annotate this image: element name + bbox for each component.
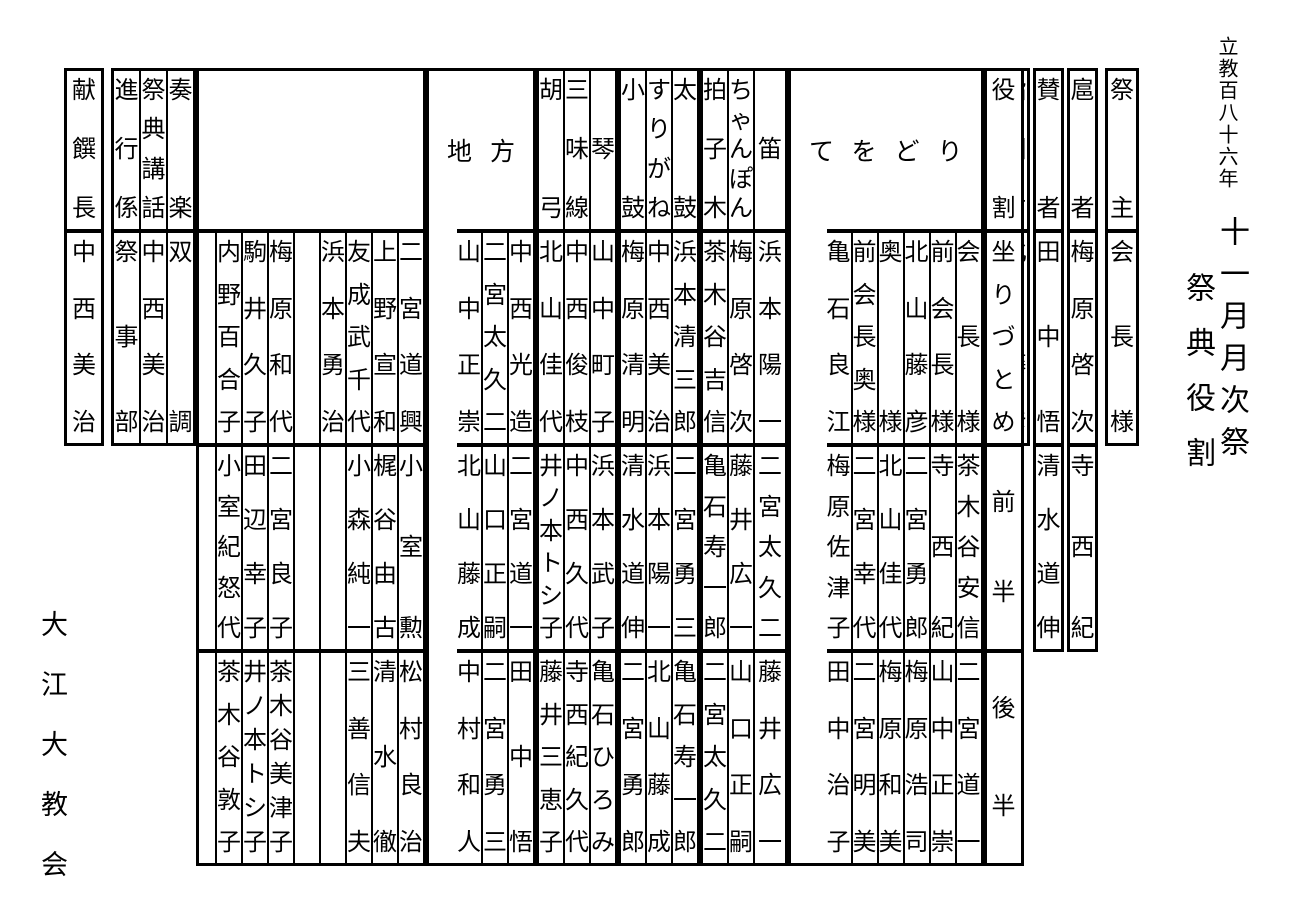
name-cell: 小室紀怒代	[217, 443, 241, 649]
jikata-group: 地方 中西光造 二宮道一 田中悟 二宮太久二 山口正嗣 二宮勇三 山中正崇 北山…	[426, 68, 536, 866]
name-cell: 二宮幸代	[853, 443, 877, 649]
taiko-columns: 太鼓 浜本清三郎 二宮勇三 亀石寿一郎 すりがね 中西美治 浜本陽一 北山藤成 …	[621, 71, 697, 863]
header-shamisen: 三味線	[565, 71, 589, 229]
name-cell: 前会長様	[931, 229, 955, 443]
kosha-box: 扈者 梅原啓次 寺西紀	[1067, 68, 1098, 652]
name-cell: 松村良治	[399, 649, 423, 863]
hyoshigi-column: 拍子木 茶木谷吉信 亀石寿一郎 二宮太久二	[703, 71, 729, 863]
teodori-column-0: 会長様 茶木谷安信 二宮道一	[957, 229, 981, 863]
name-cell: 中西俊枝	[565, 229, 589, 443]
fue-group: 笛 浜本陽一 二宮太久二 藤井広一 ちゃんぽん 梅原啓次 藤井広一 山口正嗣 拍…	[700, 68, 788, 866]
name-cell: 中西久代	[565, 443, 589, 649]
sansha-box: 賛者 田中悟 清水道伸	[1033, 68, 1064, 652]
role-group: 役割 坐りづとめ 前半 後半	[984, 68, 1024, 866]
role-header: 役割	[987, 71, 1021, 229]
name-cell: 田辺幸子	[243, 443, 267, 649]
name-cell: 藤井広一	[755, 649, 785, 863]
ensemble-group: 二宮道興 小室勲 松村良治 上野宣和 梶谷由古 清水徹 友成武千代 小森純一 三…	[196, 68, 426, 866]
teodori-column-5: 亀石良江 梅原佐津子 田中治子	[827, 229, 853, 863]
fue-column: 笛 浜本陽一 二宮太久二 藤井広一	[755, 71, 785, 863]
empty-cell	[295, 443, 319, 649]
ensemble-columns: 二宮道興 小室勲 松村良治 上野宣和 梶谷由古 清水徹 友成武千代 小森純一 三…	[199, 229, 423, 863]
name-cell: 亀石寿一郎	[703, 443, 727, 649]
name-cell: 北山佳代	[539, 229, 563, 443]
empty-cell	[199, 649, 215, 863]
name-cell: 祭事部	[114, 229, 139, 443]
sansha-column: 賛者 田中悟 清水道伸	[1036, 71, 1061, 649]
ensemble-column-6: 駒井久子 田辺幸子 井ノ本トシ子	[243, 229, 269, 863]
name-cell: 中村和人	[457, 649, 481, 863]
fue-columns: 笛 浜本陽一 二宮太久二 藤井広一 ちゃんぽん 梅原啓次 藤井広一 山口正嗣 拍…	[703, 71, 785, 863]
name-cell: 前会長奥様	[853, 229, 877, 443]
name-cell: 北山藤成	[457, 443, 481, 649]
empty-cell	[199, 443, 215, 649]
name-cell: 浜本陽一	[755, 229, 785, 443]
name-cell: 中西美治	[67, 229, 101, 443]
name-cell: 二宮勇郎	[621, 649, 645, 863]
saishu-column: 祭主 会長様	[1108, 71, 1136, 443]
name-cell: 山口正嗣	[729, 649, 753, 863]
name-cell: 友成武千代	[347, 229, 371, 443]
role-row-label: 後半	[987, 649, 1021, 863]
name-cell: 浜本武子	[591, 443, 615, 649]
saishu-box: 祭主 会長様	[1105, 68, 1139, 446]
koto-column: 琴 山中町子 浜本武子 亀石ひろみ	[591, 71, 615, 863]
header-hyoshigi: 拍子木	[703, 71, 727, 229]
name-cell: 中西美治	[141, 229, 166, 443]
name-cell: 二宮勇三	[673, 443, 697, 649]
teodori-column-3: 奥様 北山佳代 梅原和美	[879, 229, 905, 863]
header-koto: 琴	[591, 71, 615, 229]
name-cell: 清水道伸	[1036, 443, 1061, 649]
name-cell: 北山藤成	[647, 649, 671, 863]
ensemble-column-1: 上野宣和 梶谷由古 清水徹	[373, 229, 399, 863]
jikata-header: 地方	[429, 71, 533, 229]
empty-cell	[295, 229, 319, 443]
name-cell: 茶木谷美津子	[269, 649, 293, 863]
koto-columns: 琴 山中町子 浜本武子 亀石ひろみ 三味線 中西俊枝 中西久代 寺西紀久代 胡弓…	[539, 71, 615, 863]
ensemble-column-8	[199, 229, 217, 863]
name-cell: 小室勲	[399, 443, 423, 649]
name-cell: 藤井広一	[729, 443, 753, 649]
name-cell: 二宮道一	[509, 443, 533, 649]
name-cell: 寺西紀久代	[565, 649, 589, 863]
name-cell: 二宮太久二	[483, 229, 507, 443]
name-cell: 二宮勇三	[483, 649, 507, 863]
shinko-column: 進行係 祭事部	[114, 71, 141, 443]
kensen-column: 献饌長 中西美治	[67, 71, 101, 443]
name-cell: 亀石寿一郎	[673, 649, 697, 863]
kosha-header: 扈者	[1070, 71, 1095, 229]
shinko-header: 進行係	[114, 71, 139, 229]
jikata-column-2: 山中正崇 北山藤成 中村和人	[457, 229, 483, 863]
name-cell: 田中悟	[509, 649, 533, 863]
name-cell: 山中正崇	[931, 649, 955, 863]
teodori-columns: 会長様 茶木谷安信 二宮道一 前会長様 寺西紀 山中正崇 北山藤彦 二宮勇郎 梅…	[791, 229, 981, 863]
ensemble-column-2: 友成武千代 小森純一 三善信夫	[347, 229, 373, 863]
name-cell: 二宮太久二	[755, 443, 785, 649]
name-cell: 二宮勇郎	[905, 443, 929, 649]
name-cell: 茶木谷敦子	[217, 649, 241, 863]
teodori-column-4: 前会長奥様 二宮幸代 二宮明美	[853, 229, 879, 863]
koto-group: 琴 山中町子 浜本武子 亀石ひろみ 三味線 中西俊枝 中西久代 寺西紀久代 胡弓…	[536, 68, 618, 866]
ensemble-column-7: 内野百合子 小室紀怒代 茶木谷敦子	[217, 229, 243, 863]
taiko-column: 太鼓 浜本清三郎 二宮勇三 亀石寿一郎	[673, 71, 697, 863]
name-cell: 梅原浩司	[905, 649, 929, 863]
name-cell: 梅原佐津子	[827, 443, 851, 649]
left-panel-columns: 奏楽 双調 祭典講話 中西美治 進行係 祭事部	[114, 71, 193, 443]
name-cell: 小森純一	[347, 443, 371, 649]
left-panel-box: 奏楽 双調 祭典講話 中西美治 進行係 祭事部	[111, 68, 196, 446]
teodori-group: てをどり 会長様 茶木谷安信 二宮道一 前会長様 寺西紀 山中正崇 北山藤彦 二…	[788, 68, 984, 866]
name-cell: 浜本清三郎	[673, 229, 697, 443]
name-cell: 梅原清明	[621, 229, 645, 443]
name-cell: 梅原啓次	[729, 229, 753, 443]
name-cell: 藤井三恵子	[539, 649, 563, 863]
document-page: 立教百八十六年 十一月月次祭 祭典役割 祭主 会長様 扈者 梅原啓次 寺西紀 賛…	[0, 0, 1303, 921]
jikata-columns: 中西光造 二宮道一 田中悟 二宮太久二 山口正嗣 二宮勇三 山中正崇 北山藤成 …	[429, 229, 533, 863]
jikata-column-0: 中西光造 二宮道一 田中悟	[509, 229, 533, 863]
name-cell: 会長様	[1108, 229, 1136, 443]
name-cell: 田中治子	[827, 649, 851, 863]
name-cell: 茶木谷吉信	[703, 229, 727, 443]
name-cell: 二宮明美	[853, 649, 877, 863]
header-chanpon: ちゃんぽん	[729, 71, 753, 229]
header-surigane: すりがね	[647, 71, 671, 229]
ensemble-column-4	[295, 229, 321, 863]
header-taiko: 太鼓	[673, 71, 697, 229]
chanpon-column: ちゃんぽん 梅原啓次 藤井広一 山口正嗣	[729, 71, 755, 863]
name-cell: 亀石良江	[827, 229, 851, 443]
name-cell: 北山佳代	[879, 443, 903, 649]
name-cell: 二宮道一	[957, 649, 981, 863]
header-kokyu: 胡弓	[539, 71, 563, 229]
role-row-label: 坐りづとめ	[987, 229, 1021, 443]
kowa-column: 祭典講話 中西美治	[141, 71, 168, 443]
name-cell: 奥様	[879, 229, 903, 443]
taiko-group: 太鼓 浜本清三郎 二宮勇三 亀石寿一郎 すりがね 中西美治 浜本陽一 北山藤成 …	[618, 68, 700, 866]
name-cell: 浜本勇治	[321, 229, 345, 443]
name-cell: 清水徹	[373, 649, 397, 863]
name-cell: 内野百合子	[217, 229, 241, 443]
name-cell: 亀石ひろみ	[591, 649, 615, 863]
name-cell: 二宮太久二	[703, 649, 727, 863]
name-cell	[321, 649, 345, 863]
organization-name: 大江大教会	[33, 610, 72, 910]
sogaku-column: 奏楽 双調	[168, 71, 193, 443]
empty-cell	[295, 649, 319, 863]
name-cell: 浜本陽一	[647, 443, 671, 649]
name-cell: 二宮道興	[399, 229, 423, 443]
name-cell: 北山藤彦	[905, 229, 929, 443]
name-cell: 梶谷由古	[373, 443, 397, 649]
saishu-header: 祭主	[1108, 71, 1136, 229]
kowa-header: 祭典講話	[141, 71, 166, 229]
name-cell: 中西光造	[509, 229, 533, 443]
kokyu-column: 胡弓 北山佳代 井ノ本トシ子 藤井三恵子	[539, 71, 565, 863]
name-cell: 寺西紀	[931, 443, 955, 649]
kensen-box: 献饌長 中西美治	[64, 68, 104, 446]
name-cell: 井ノ本トシ子	[539, 443, 563, 649]
name-cell: 上野宣和	[373, 229, 397, 443]
name-cell: 双調	[168, 229, 193, 443]
role-row-label: 前半	[987, 443, 1021, 649]
header-kotsuzumi: 小鼓	[621, 71, 645, 229]
ensemble-column-0: 二宮道興 小室勲 松村良治	[399, 229, 423, 863]
name-cell: 駒井久子	[243, 229, 267, 443]
shamisen-column: 三味線 中西俊枝 中西久代 寺西紀久代	[565, 71, 591, 863]
kosha-column: 扈者 梅原啓次 寺西紀	[1070, 71, 1095, 649]
name-cell: 梅原和美	[879, 649, 903, 863]
name-cell	[321, 443, 345, 649]
header-fue: 笛	[755, 71, 785, 229]
name-cell: 中西美治	[647, 229, 671, 443]
name-cell: 二宮良子	[269, 443, 293, 649]
name-cell: 清水道伸	[621, 443, 645, 649]
name-cell: 梅原啓次	[1070, 229, 1095, 443]
name-cell: 三善信夫	[347, 649, 371, 863]
main-table: 役割 坐りづとめ 前半 後半 てをどり 会長様 茶木谷安信 二宮道一 前会長様 …	[196, 68, 1024, 866]
name-cell: 山中町子	[591, 229, 615, 443]
teodori-header: てをどり	[791, 71, 981, 229]
surigane-column: すりがね 中西美治 浜本陽一 北山藤成	[647, 71, 673, 863]
name-cell: 会長様	[957, 229, 981, 443]
name-cell: 茶木谷安信	[957, 443, 981, 649]
role-column: 役割 坐りづとめ 前半 後半	[987, 71, 1021, 863]
ensemble-column-3: 浜本勇治	[321, 229, 347, 863]
title-era: 立教百八十六年	[1212, 36, 1241, 190]
ensemble-column-5: 梅原和代 二宮良子 茶木谷美津子	[269, 229, 295, 863]
name-cell: 梅原和代	[269, 229, 293, 443]
name-cell: 田中悟	[1036, 229, 1061, 443]
teodori-column-1: 前会長様 寺西紀 山中正崇	[931, 229, 957, 863]
kotsuzumi-column: 小鼓 梅原清明 清水道伸 二宮勇郎	[621, 71, 647, 863]
name-cell: 山中正崇	[457, 229, 481, 443]
jikata-column-1: 二宮太久二 山口正嗣 二宮勇三	[483, 229, 509, 863]
title-doc: 祭典役割	[1175, 272, 1219, 492]
name-cell: 寺西紀	[1070, 443, 1095, 649]
name-cell: 井ノ本トシ子	[243, 649, 267, 863]
sogaku-header: 奏楽	[168, 71, 193, 229]
empty-cell	[199, 229, 215, 443]
ensemble-header	[199, 71, 423, 229]
sansha-header: 賛者	[1036, 71, 1061, 229]
teodori-column-2: 北山藤彦 二宮勇郎 梅原浩司	[905, 229, 931, 863]
name-cell: 山口正嗣	[483, 443, 507, 649]
kensen-header: 献饌長	[67, 71, 101, 229]
